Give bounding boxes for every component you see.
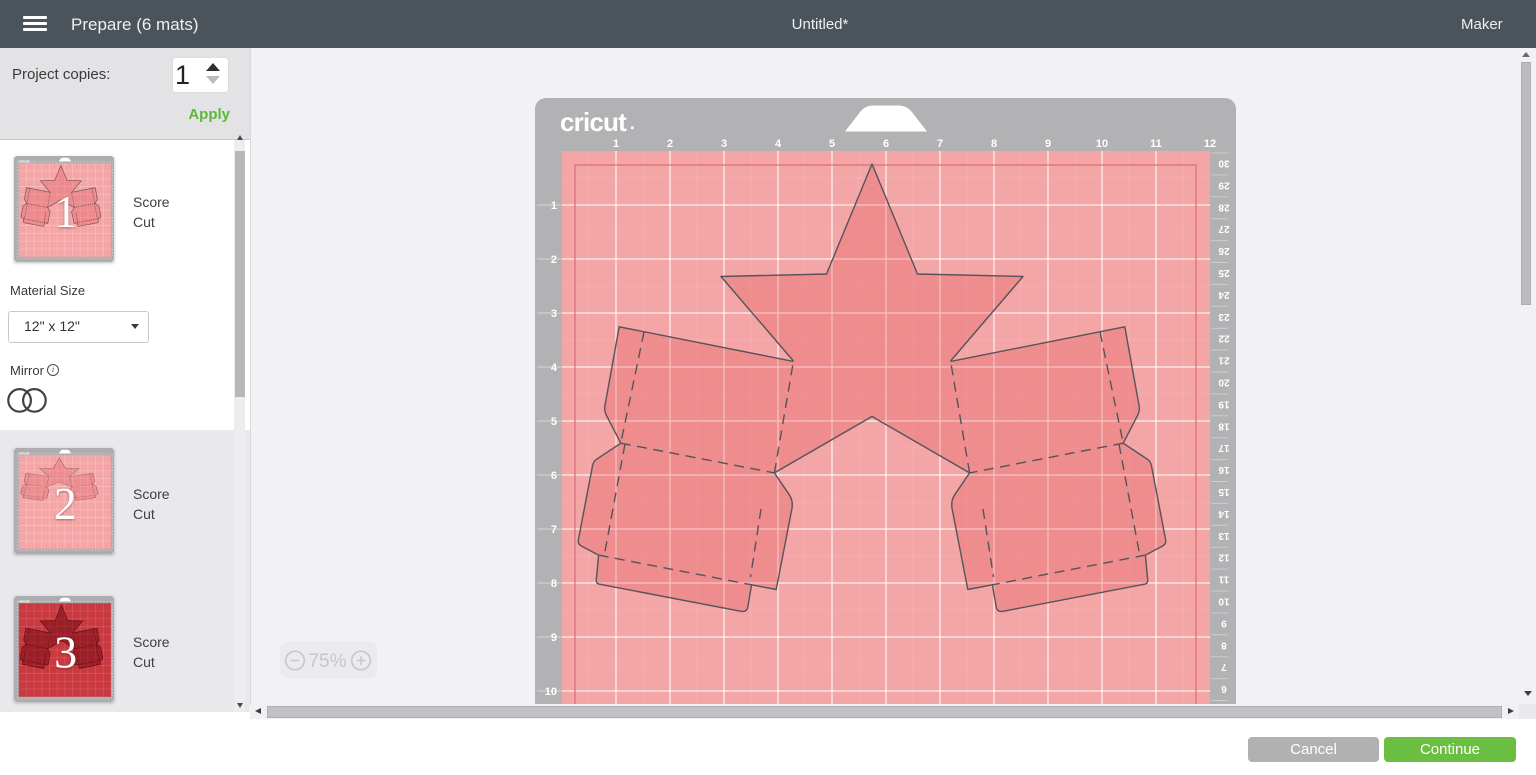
svg-text:15: 15 [1218, 486, 1230, 497]
svg-text:5: 5 [551, 416, 557, 428]
svg-text:8: 8 [991, 138, 997, 150]
svg-text:9: 9 [551, 632, 557, 644]
svg-text:7: 7 [551, 524, 557, 536]
svg-text:12: 12 [1218, 552, 1230, 563]
svg-text:cricut: cricut [19, 451, 31, 456]
svg-text:7: 7 [937, 138, 943, 150]
svg-text:9: 9 [1045, 138, 1051, 150]
svg-text:3: 3 [54, 627, 77, 678]
svg-text:cricut: cricut [19, 159, 31, 164]
svg-text:8: 8 [1221, 639, 1227, 650]
svg-text:9: 9 [1221, 617, 1227, 628]
svg-text:10: 10 [545, 686, 557, 698]
svg-text:6: 6 [551, 470, 557, 482]
svg-text:4: 4 [551, 362, 558, 374]
svg-text:24: 24 [1218, 289, 1230, 300]
svg-text:8: 8 [551, 578, 557, 590]
svg-text:22: 22 [1218, 333, 1230, 344]
svg-text:27: 27 [1218, 223, 1230, 234]
svg-text:3: 3 [721, 138, 727, 150]
svg-text:29: 29 [1218, 179, 1230, 190]
svg-text:2: 2 [551, 254, 557, 266]
svg-text:2: 2 [54, 478, 77, 529]
svg-text:13: 13 [1218, 530, 1230, 541]
svg-text:cricut: cricut [19, 599, 31, 604]
svg-text:11: 11 [1150, 138, 1162, 150]
svg-text:30: 30 [1218, 158, 1230, 169]
svg-text:16: 16 [1218, 464, 1230, 475]
svg-text:14: 14 [1218, 508, 1230, 519]
svg-text:12: 12 [1204, 138, 1216, 150]
svg-text:1: 1 [54, 186, 77, 237]
svg-text:2: 2 [667, 138, 673, 150]
svg-text:25: 25 [1218, 267, 1230, 278]
svg-text:75%: 75% [308, 651, 346, 672]
svg-text:28: 28 [1218, 201, 1230, 212]
svg-text:21: 21 [1218, 355, 1230, 366]
svg-text:6: 6 [883, 138, 889, 150]
svg-text:cricut: cricut [560, 107, 627, 137]
svg-text:23: 23 [1218, 311, 1230, 322]
svg-text:1: 1 [551, 200, 557, 212]
svg-text:3: 3 [551, 308, 557, 320]
svg-text:6: 6 [1221, 683, 1227, 694]
svg-text:20: 20 [1218, 377, 1230, 388]
svg-text:19: 19 [1218, 398, 1230, 409]
svg-text:26: 26 [1218, 245, 1230, 256]
svg-text:7: 7 [1221, 661, 1227, 672]
svg-text:10: 10 [1096, 138, 1108, 150]
svg-text:5: 5 [829, 138, 835, 150]
svg-text:17: 17 [1218, 442, 1230, 453]
svg-text:1: 1 [613, 138, 619, 150]
svg-text:10: 10 [1218, 596, 1230, 607]
svg-text:18: 18 [1218, 420, 1230, 431]
svg-text:4: 4 [775, 138, 782, 150]
svg-text:11: 11 [1218, 574, 1229, 585]
